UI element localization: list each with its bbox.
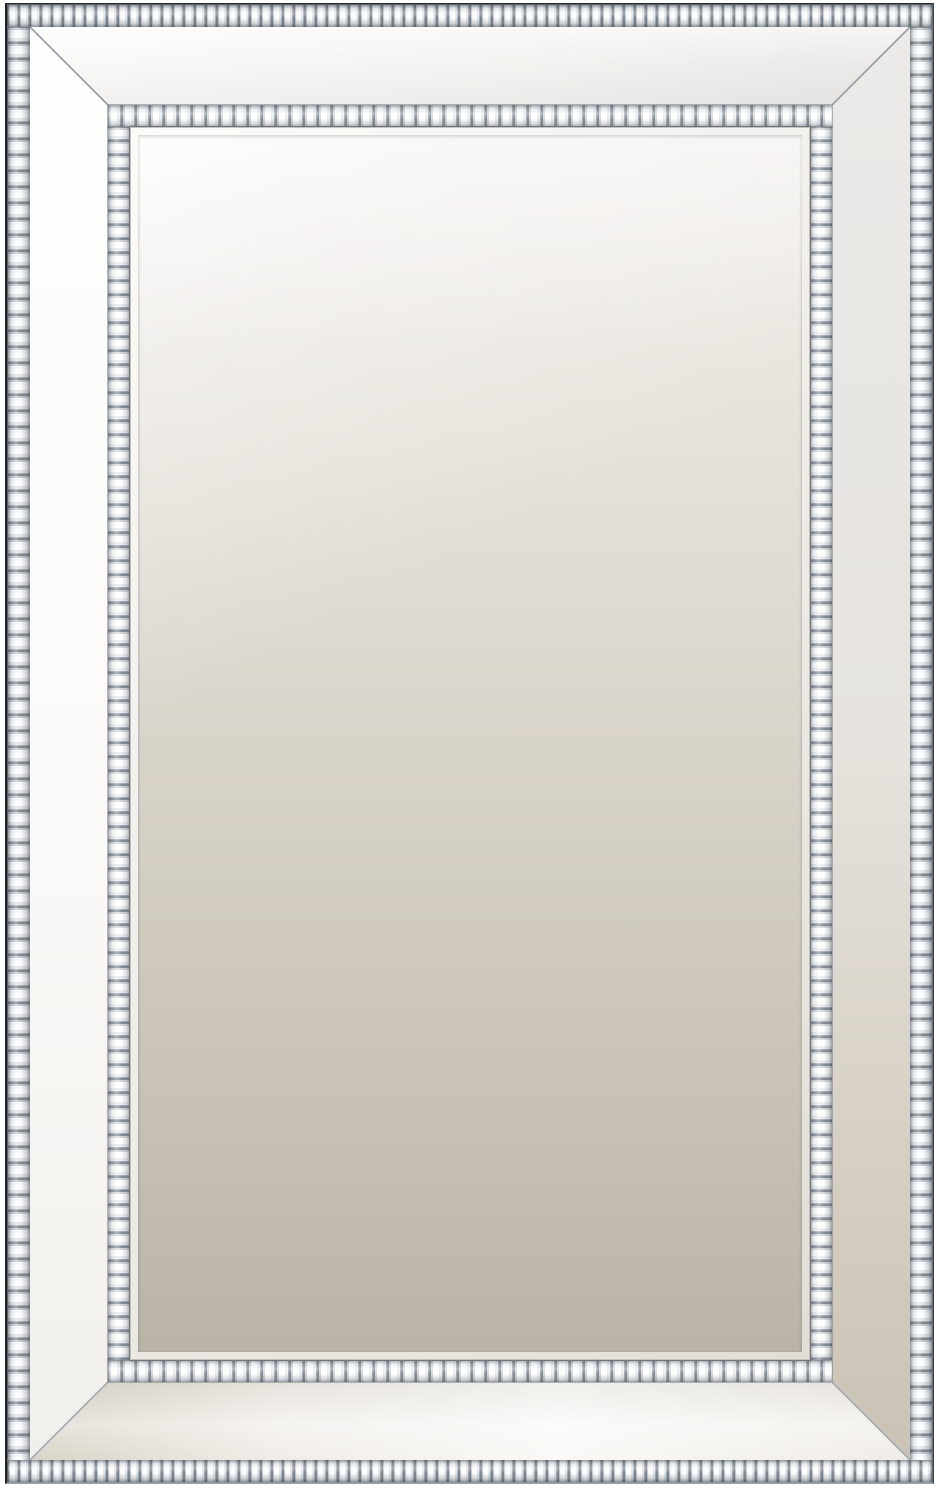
outer-bead-strip-right — [910, 27, 932, 1460]
inner-bead-strip-top — [108, 105, 832, 127]
outer-bead-strip-left — [8, 27, 30, 1460]
product-photo — [0, 0, 939, 1500]
frame-panel-right — [832, 27, 910, 1460]
mirror-glass — [138, 135, 802, 1352]
frame-panel-bottom — [30, 1382, 910, 1460]
inner-bead-strip-bottom — [108, 1360, 832, 1382]
glass-reflection-highlight — [138, 135, 802, 1352]
inner-bead-strip-left — [108, 127, 130, 1360]
outer-bead-strip-bottom — [8, 1460, 932, 1482]
outer-bead-strip-top — [8, 5, 932, 27]
inner-bead-strip-right — [810, 127, 832, 1360]
mirror-frame — [5, 3, 934, 1484]
frame-panel-left — [30, 27, 108, 1460]
frame-panel-top — [30, 27, 910, 105]
